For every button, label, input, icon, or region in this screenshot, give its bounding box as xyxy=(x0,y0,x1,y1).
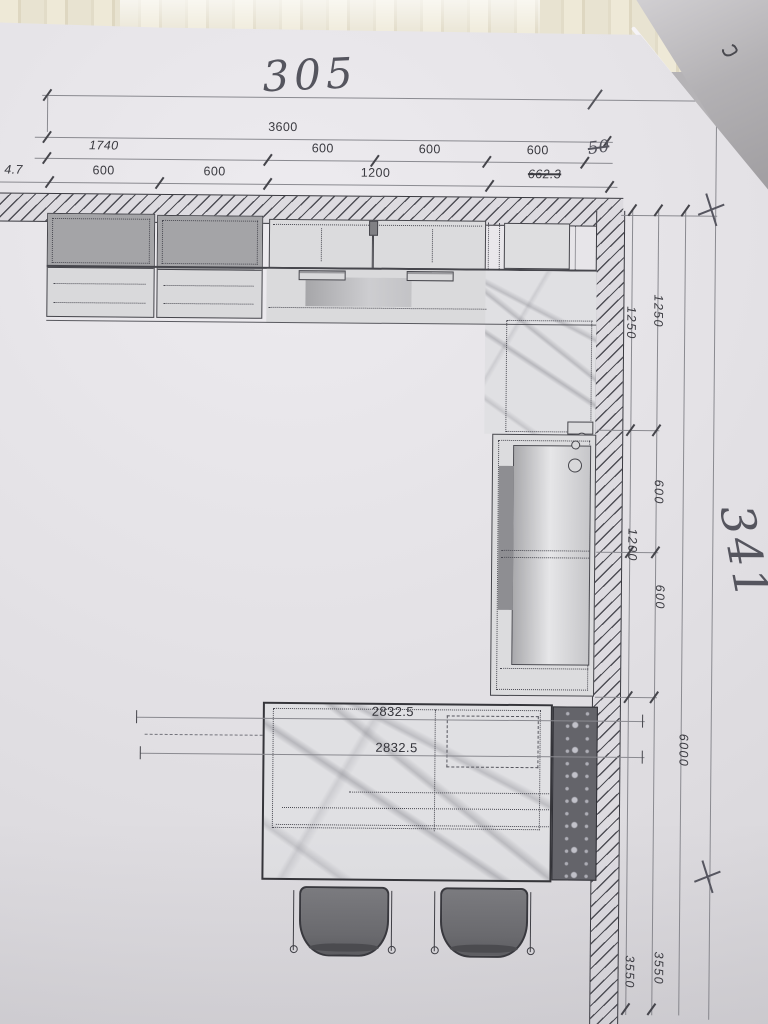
dim-label-600: 600 xyxy=(92,163,114,177)
cabinet-dotted-detail xyxy=(162,220,258,265)
dim-label-1200: 1200 xyxy=(361,166,391,180)
corner-wall-cabinet xyxy=(504,223,570,270)
bar-stool-2 xyxy=(440,887,529,958)
dim-label-662-struck: 662.3 xyxy=(528,167,561,181)
cabinet-dotted-line xyxy=(273,224,369,226)
tall-unit-side-panel xyxy=(498,466,514,610)
dim-label-partial: 4.7 xyxy=(4,163,23,177)
dim-label-1250-inner: 1250 xyxy=(624,306,638,340)
dim-label-6000-total: 6000 xyxy=(676,734,690,768)
dim-label-600: 600 xyxy=(419,142,441,156)
dim-label-1200-inner: 1200 xyxy=(625,528,639,562)
wall-cabinet-3 xyxy=(269,219,373,269)
handwritten-overall-height: 341 xyxy=(709,500,768,605)
hinge-symbol-small xyxy=(571,440,580,449)
fridge-footprint xyxy=(511,445,591,666)
photo-of-floor-plan: 305 3600 1740 600 600 600 50 4.7 600 6 xyxy=(0,0,768,1024)
cabinet-divider-block xyxy=(369,221,378,236)
dim-line-overall-width xyxy=(42,95,718,102)
stool-armrest xyxy=(391,891,397,951)
corner-dotted-strip xyxy=(575,225,576,269)
handwritten-overall-width: 305 xyxy=(261,48,358,101)
dim-line-total-col xyxy=(678,209,686,1015)
island-dashed-zone xyxy=(446,715,538,768)
dim-line-row2 xyxy=(35,158,613,164)
cabinet-dotted-line xyxy=(54,283,146,285)
dim-end-tick xyxy=(642,751,644,764)
cabinet-dotted-line xyxy=(163,303,253,305)
cabinet-dotted-line xyxy=(164,285,254,287)
dim-line-row3 xyxy=(0,181,617,187)
corner-counter-dotted-detail xyxy=(505,320,592,433)
paper-sheet: 305 3600 1740 600 600 600 50 4.7 600 6 xyxy=(0,0,768,1024)
dim-label-3600: 3600 xyxy=(268,120,298,134)
dim-line-outer-col xyxy=(651,209,659,1015)
island-dim-label-1: 2832.5 xyxy=(372,704,414,719)
cabinet-dotted-line xyxy=(321,228,322,261)
dim-label-1250-outer: 1250 xyxy=(651,294,665,328)
hinge-symbol-large xyxy=(568,458,582,472)
cabinet-handle-left xyxy=(299,270,346,280)
cabinet-dotted-line xyxy=(431,229,432,262)
cabinet-handle-right xyxy=(407,271,454,281)
hand-cross-tick-top xyxy=(694,193,728,227)
stool-armrest xyxy=(434,891,440,951)
dim-label-600: 600 xyxy=(203,164,225,178)
cabinet-dotted-line xyxy=(53,302,145,304)
cabinet-dotted-detail xyxy=(52,218,150,264)
dim-label-600: 600 xyxy=(312,141,334,155)
dim-extension-line xyxy=(47,96,48,132)
island-centerline-dashed xyxy=(145,734,263,736)
island-dim-label-2: 2832.5 xyxy=(375,740,417,755)
cabinet-dotted-line xyxy=(377,225,482,227)
dim-label-600-outer: 600 xyxy=(652,480,666,505)
dim-label-3550-inner: 3550 xyxy=(622,955,636,989)
dim-label-600-outer: 600 xyxy=(653,585,667,610)
hand-cross-tick-bottom xyxy=(690,860,724,894)
radiator-block xyxy=(551,706,598,880)
bar-stool-1 xyxy=(299,886,390,957)
handwritten-dim-50-struck: 50 xyxy=(587,136,611,159)
dim-label-3550-outer: 3550 xyxy=(651,951,665,985)
stool-armrest xyxy=(293,890,299,950)
dim-label-600: 600 xyxy=(527,143,549,157)
dim-end-tick xyxy=(140,746,142,759)
dim-end-tick xyxy=(136,710,138,723)
dim-label-1740: 1740 xyxy=(89,138,119,152)
dim-end-tick xyxy=(642,715,644,728)
wall-cabinet-4 xyxy=(373,220,486,270)
stool-armrest xyxy=(530,892,536,952)
cooktop-hood-shadow xyxy=(305,277,411,307)
kitchen-floor-plan: 305 3600 1740 600 600 600 50 4.7 600 6 xyxy=(0,0,768,1024)
